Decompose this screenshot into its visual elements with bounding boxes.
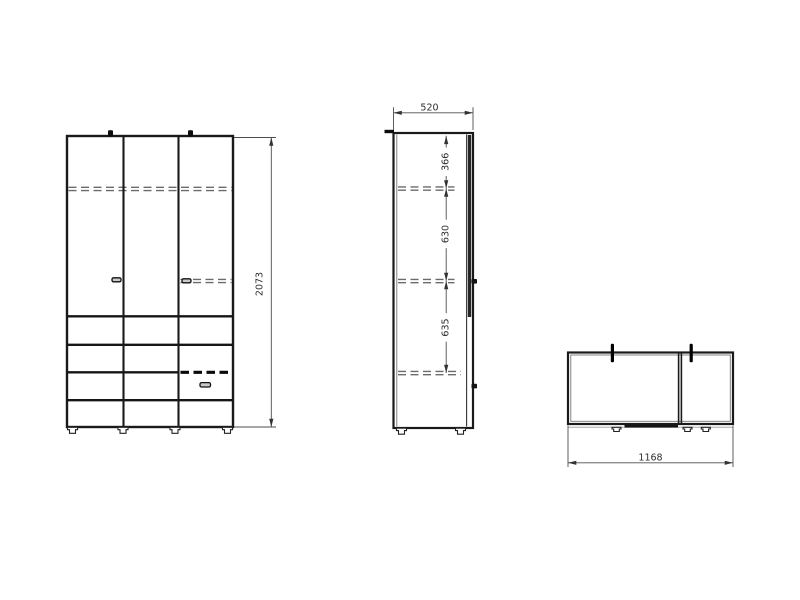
arrowhead-icon <box>725 461 733 465</box>
foot <box>397 428 407 434</box>
foot <box>456 428 466 434</box>
foot <box>118 427 128 433</box>
top-width-label: 1168 <box>638 453 662 464</box>
front-height-label: 2073 <box>255 272 266 296</box>
drawer-handle-profile <box>472 384 478 389</box>
side-depth-label: 520 <box>420 103 438 114</box>
handle-tab <box>683 427 692 431</box>
side-top-section-label: 366 <box>441 153 452 171</box>
arrowhead-icon <box>269 138 273 146</box>
foot <box>68 427 78 433</box>
side-top-tab <box>385 130 395 133</box>
top-door-front-edge <box>625 425 679 428</box>
handle-tab <box>701 427 710 431</box>
front-height-dimension: 2073 <box>234 138 276 428</box>
right-door-handle <box>182 279 191 283</box>
side-middle-section-label: 630 <box>441 225 452 243</box>
drawer-handle <box>200 383 211 387</box>
hinge-pin-icon <box>690 344 693 363</box>
side-cabinet-outline <box>394 133 474 428</box>
arrowhead-icon <box>568 461 576 465</box>
side-depth-dimension: 520 <box>394 103 474 130</box>
side-bottom-section-label: 635 <box>441 318 452 336</box>
door-handle-profile <box>472 279 478 284</box>
top-handle-tabs <box>612 427 710 431</box>
technical-drawing-page: 2073 <box>0 0 800 600</box>
arrowhead-icon <box>269 419 273 427</box>
hinge-pin-icon <box>611 344 614 363</box>
arrowhead-icon <box>465 111 473 115</box>
front-view: 2073 <box>67 130 276 433</box>
arrowhead-icon <box>394 111 402 115</box>
foot <box>170 427 180 433</box>
top-cabinet-outline <box>568 353 733 425</box>
foot <box>223 427 233 433</box>
hinge-pin-icon <box>108 130 113 136</box>
top-view: 1168 <box>568 344 733 467</box>
side-view: 520 366 630 635 <box>385 103 478 435</box>
hinge-pin-icon <box>188 130 193 136</box>
left-door-handle <box>112 278 121 282</box>
side-door-edge <box>468 135 471 317</box>
wardrobe-three-view-drawing: 2073 <box>0 0 800 600</box>
handle-tab <box>612 427 621 431</box>
